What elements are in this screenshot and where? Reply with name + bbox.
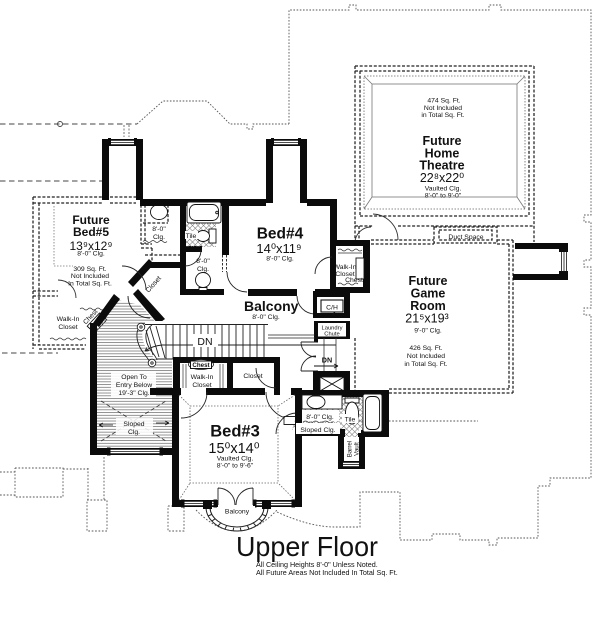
svg-text:Not Included: Not Included <box>424 105 462 112</box>
svg-text:Chest: Chest <box>192 362 209 369</box>
svg-text:19'-3" Clg.: 19'-3" Clg. <box>118 390 149 397</box>
svg-text:9'-0" Clg.: 9'-0" Clg. <box>414 328 442 335</box>
svg-text:Closet: Closet <box>192 382 211 389</box>
svg-text:Closet: Closet <box>58 324 77 331</box>
svg-text:Vaulted Clg.: Vaulted Clg. <box>217 456 254 463</box>
svg-text:Not Included: Not Included <box>407 353 445 360</box>
svg-text:Entry Below: Entry Below <box>116 382 152 389</box>
svg-text:DN: DN <box>197 336 212 348</box>
svg-text:8'-0": 8'-0" <box>152 226 166 233</box>
svg-text:Clg.: Clg. <box>197 266 209 273</box>
svg-text:Open To: Open To <box>121 374 147 381</box>
svg-text:Vaulted Clg.: Vaulted Clg. <box>425 186 462 193</box>
svg-text:Bed#5: Bed#5 <box>73 225 109 239</box>
svg-text:309 Sq. Ft.: 309 Sq. Ft. <box>73 266 106 273</box>
svg-text:474 Sq. Ft.: 474 Sq. Ft. <box>427 98 460 105</box>
svg-text:in Total Sq. Ft.: in Total Sq. Ft. <box>421 112 464 119</box>
svg-text:Chest: Chest <box>345 277 363 284</box>
svg-text:Balcony: Balcony <box>225 509 250 516</box>
svg-text:In Total Sq. Ft.: In Total Sq. Ft. <box>68 281 112 288</box>
svg-text:DN: DN <box>322 356 332 365</box>
svg-text:8'-0" Clg.: 8'-0" Clg. <box>306 414 334 421</box>
svg-text:Upper Floor: Upper Floor <box>236 531 378 562</box>
svg-text:8'-0" to 9'-6": 8'-0" to 9'-6" <box>217 463 254 470</box>
svg-text:Duct Space: Duct Space <box>448 234 483 241</box>
svg-text:Sloped: Sloped <box>123 421 144 428</box>
svg-text:8'-0" Clg.: 8'-0" Clg. <box>252 314 280 321</box>
svg-text:Tile: Tile <box>345 417 356 424</box>
svg-text:Sloped Clg.: Sloped Clg. <box>300 427 335 434</box>
svg-text:22⁸x22⁰: 22⁸x22⁰ <box>420 171 464 185</box>
svg-text:Balcony: Balcony <box>244 298 299 314</box>
svg-text:8'-0": 8'-0" <box>196 258 210 265</box>
svg-text:Walk-In: Walk-In <box>191 374 214 381</box>
svg-text:in Total Sq. Ft.: in Total Sq. Ft. <box>404 361 447 368</box>
svg-text:426 Sq. Ft.: 426 Sq. Ft. <box>409 345 442 352</box>
svg-text:Clg.: Clg. <box>153 234 165 241</box>
svg-text:Tile: Tile <box>186 233 197 240</box>
svg-text:Not Included: Not Included <box>71 273 109 280</box>
svg-text:C/H: C/H <box>326 305 338 312</box>
svg-text:Vault: Vault <box>354 442 361 456</box>
svg-text:8'-0" Clg.: 8'-0" Clg. <box>77 251 105 258</box>
svg-text:Walk-In: Walk-In <box>57 316 80 323</box>
svg-text:8'-0" to 9'-0": 8'-0" to 9'-0" <box>425 193 462 200</box>
svg-text:Chute: Chute <box>324 332 339 338</box>
svg-text:21⁵x19³: 21⁵x19³ <box>405 312 448 326</box>
svg-text:All Future Areas Not Included: All Future Areas Not Included In Total S… <box>256 568 398 577</box>
svg-text:Walk-In: Walk-In <box>334 264 357 271</box>
svg-text:8'-0" Clg.: 8'-0" Clg. <box>266 256 294 263</box>
svg-text:Closet: Closet <box>243 373 262 380</box>
svg-text:Clg.: Clg. <box>128 429 140 436</box>
svg-text:14⁰x11⁹: 14⁰x11⁹ <box>256 241 301 256</box>
svg-text:Bed#3: Bed#3 <box>210 423 260 441</box>
svg-text:Bed#4: Bed#4 <box>257 226 304 243</box>
svg-text:Barrel: Barrel <box>347 441 354 458</box>
